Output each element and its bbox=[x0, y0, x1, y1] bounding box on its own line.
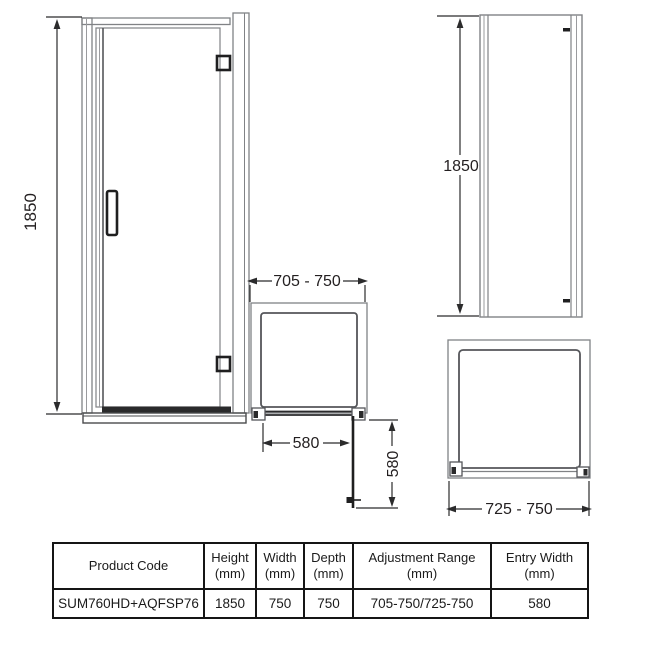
hinge-top bbox=[217, 56, 230, 70]
front-height-label: 1850 bbox=[21, 193, 40, 231]
front-view-drawing: 1850 bbox=[21, 13, 249, 423]
door-bottom-rail bbox=[102, 407, 231, 414]
shower-enclosure-spec-sheet: { "drawing": { "front_view": { "height_d… bbox=[0, 0, 650, 650]
col-header-entry-width: Entry Width (mm) bbox=[491, 543, 588, 589]
panel-width-label: 725 - 750 bbox=[485, 501, 553, 518]
col-header-product-code: Product Code bbox=[53, 543, 204, 589]
door-width-label: 705 - 750 bbox=[273, 273, 341, 290]
spec-table: Product Code Height (mm) Width (mm) Dept… bbox=[52, 542, 587, 619]
door-glass-panel bbox=[96, 28, 220, 407]
door-handle bbox=[107, 191, 117, 235]
cell-depth: 750 bbox=[304, 589, 353, 618]
plan-view-panel-drawing: 725 - 750 bbox=[446, 340, 592, 518]
col-header-depth: Depth (mm) bbox=[304, 543, 353, 589]
panel-clamp-top bbox=[563, 28, 570, 32]
side-height-label: 1850 bbox=[443, 158, 479, 175]
col-header-adjustment-range: Adjustment Range (mm) bbox=[353, 543, 491, 589]
door-projection-label: 580 bbox=[385, 451, 402, 478]
plan-view-door-drawing: 705 - 750 580 580 bbox=[247, 271, 402, 508]
col-header-width: Width (mm) bbox=[256, 543, 304, 589]
cell-height: 1850 bbox=[204, 589, 256, 618]
cell-product-code: SUM760HD+AQFSP76 bbox=[53, 589, 204, 618]
shower-tray-front bbox=[83, 413, 246, 423]
front-height-dimension bbox=[46, 17, 82, 414]
hinge-bottom bbox=[217, 357, 230, 371]
col-header-height: Height (mm) bbox=[204, 543, 256, 589]
cell-entry-width: 580 bbox=[491, 589, 588, 618]
door-handle-plan bbox=[347, 497, 353, 503]
spec-table-data-row: SUM760HD+AQFSP76 1850 750 750 705-750/72… bbox=[53, 589, 588, 618]
spec-table-header-row: Product Code Height (mm) Width (mm) Dept… bbox=[53, 543, 588, 589]
cell-adjustment-range: 705-750/725-750 bbox=[353, 589, 491, 618]
cell-width: 750 bbox=[256, 589, 304, 618]
panel-clamp-bottom bbox=[563, 299, 570, 303]
entry-width-label: 580 bbox=[293, 435, 320, 452]
side-view-drawing: 1850 bbox=[437, 15, 582, 317]
